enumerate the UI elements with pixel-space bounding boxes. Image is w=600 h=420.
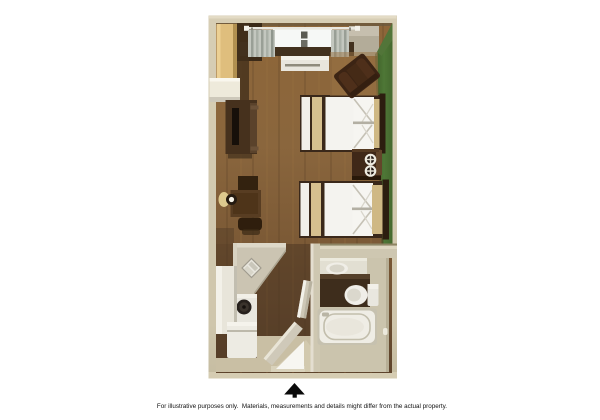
- svg-text:For illustrative purposes only: For illustrative purposes only. Material…: [157, 403, 447, 410]
